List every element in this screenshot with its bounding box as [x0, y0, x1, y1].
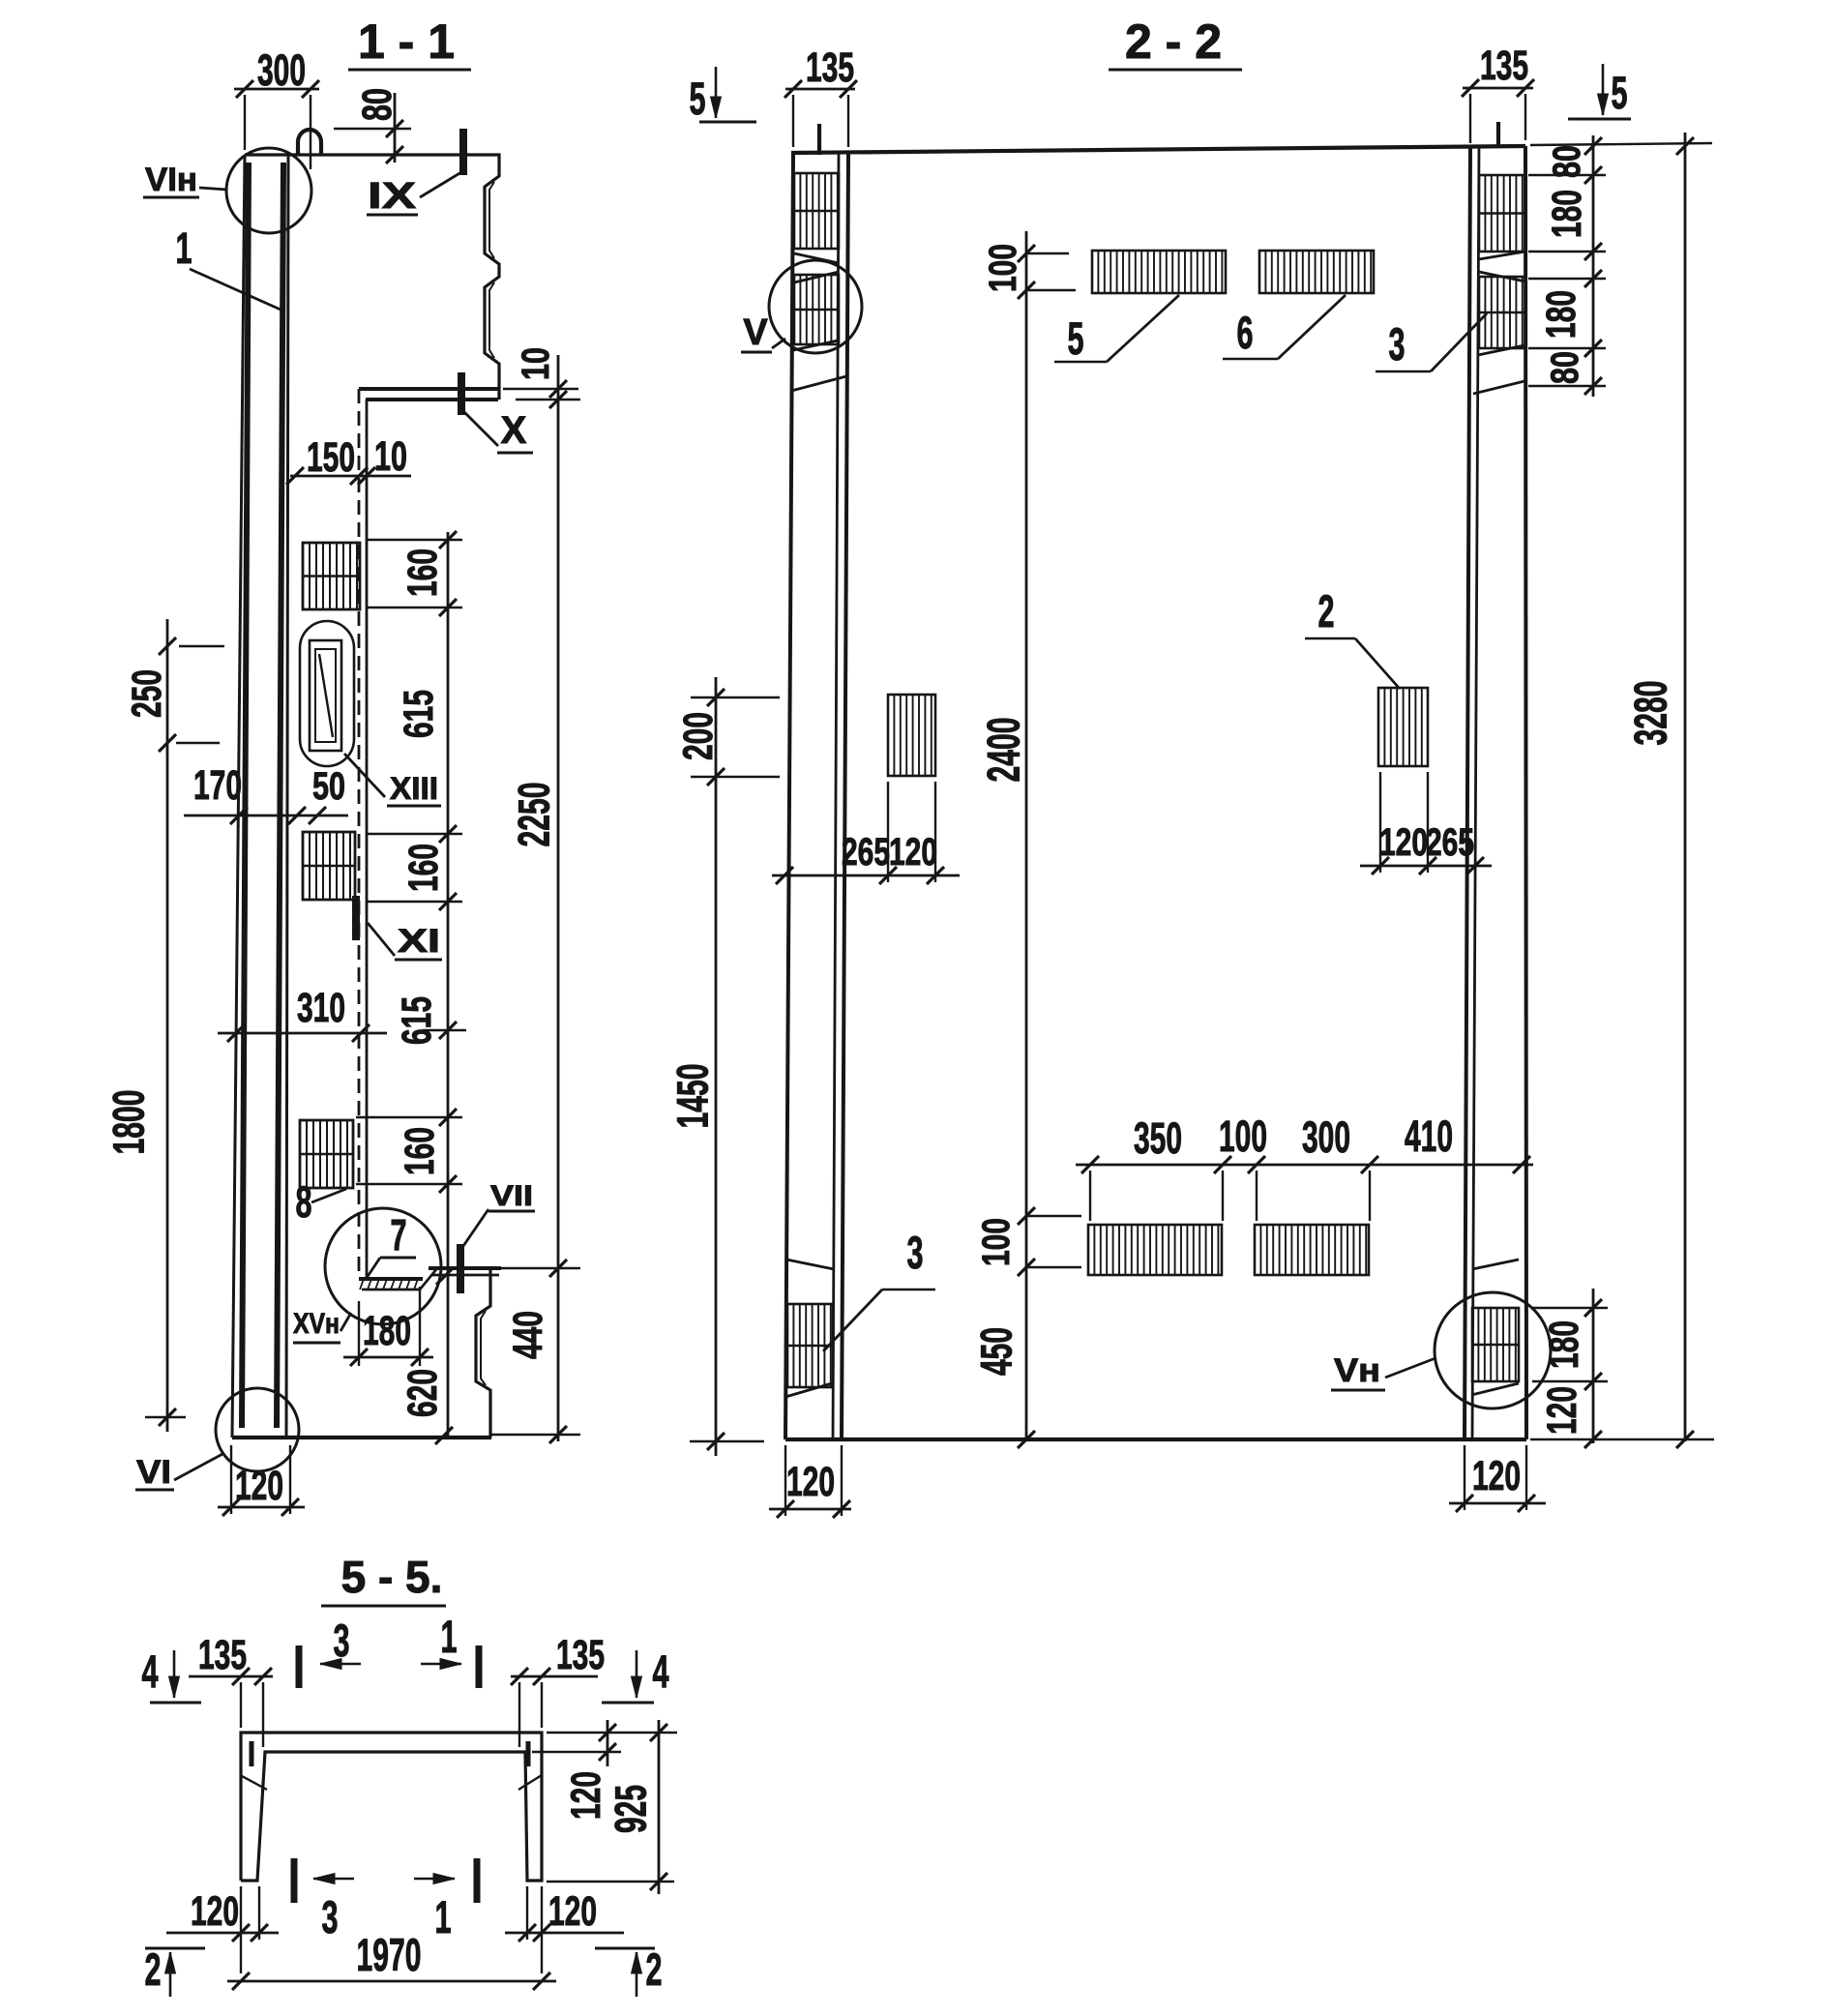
svg-text:120: 120 [1379, 821, 1428, 864]
svg-text:265: 265 [842, 831, 890, 874]
svg-text:120: 120 [235, 1463, 283, 1509]
svg-text:1: 1 [176, 223, 192, 273]
svg-text:50: 50 [312, 765, 345, 808]
svg-text:265: 265 [1426, 821, 1474, 864]
svg-text:3280: 3280 [1625, 681, 1676, 746]
svg-text:300: 300 [257, 45, 306, 95]
svg-text:80: 80 [354, 88, 400, 121]
svg-text:1 - 1: 1 - 1 [358, 15, 455, 69]
svg-text:V: V [743, 312, 768, 353]
svg-text:80: 80 [1546, 145, 1588, 178]
svg-text:80: 80 [1544, 351, 1586, 384]
svg-text:350: 350 [1134, 1113, 1182, 1163]
svg-text:6: 6 [1237, 307, 1254, 358]
svg-text:440: 440 [505, 1311, 551, 1359]
svg-text:4: 4 [653, 1645, 669, 1697]
svg-text:3: 3 [322, 1891, 339, 1942]
svg-text:120: 120 [548, 1888, 597, 1935]
svg-text:100: 100 [982, 244, 1024, 292]
svg-text:5: 5 [1068, 312, 1084, 364]
svg-text:200: 200 [675, 712, 722, 760]
svg-text:1450: 1450 [668, 1064, 718, 1129]
svg-text:VII: VII [490, 1180, 533, 1212]
svg-text:310: 310 [297, 985, 345, 1031]
svg-text:3: 3 [907, 1227, 924, 1278]
svg-text:2: 2 [1318, 585, 1335, 637]
svg-text:135: 135 [806, 44, 854, 91]
svg-text:3: 3 [1389, 318, 1406, 370]
svg-text:120: 120 [889, 831, 937, 874]
svg-text:1: 1 [435, 1891, 452, 1942]
svg-text:620: 620 [400, 1369, 446, 1417]
svg-text:8: 8 [296, 1177, 312, 1227]
svg-text:180: 180 [363, 1308, 411, 1354]
svg-text:2250: 2250 [510, 783, 559, 847]
svg-text:2 - 2: 2 - 2 [1125, 15, 1222, 69]
svg-text:1800: 1800 [104, 1090, 154, 1155]
svg-text:X: X [501, 409, 527, 452]
svg-text:180: 180 [1544, 190, 1590, 238]
svg-text:160: 160 [400, 548, 446, 597]
svg-text:2: 2 [145, 1943, 162, 1995]
svg-text:170: 170 [193, 762, 242, 809]
svg-text:10: 10 [515, 347, 557, 380]
svg-text:4: 4 [142, 1645, 159, 1697]
svg-text:135: 135 [556, 1632, 605, 1678]
svg-text:5 - 5.: 5 - 5. [341, 1552, 443, 1602]
svg-text:2: 2 [646, 1943, 663, 1995]
svg-text:120: 120 [786, 1459, 835, 1505]
svg-text:2400: 2400 [978, 718, 1029, 783]
svg-text:410: 410 [1405, 1112, 1453, 1161]
svg-text:120: 120 [191, 1888, 239, 1935]
svg-text:615: 615 [394, 996, 440, 1045]
svg-text:160: 160 [397, 1127, 443, 1175]
svg-text:Vн: Vн [1334, 1352, 1380, 1389]
svg-text:5: 5 [1612, 67, 1628, 118]
svg-text:VI: VI [136, 1454, 171, 1491]
svg-text:120: 120 [1472, 1453, 1521, 1499]
svg-text:1: 1 [441, 1611, 458, 1662]
svg-text:925: 925 [607, 1785, 656, 1833]
svg-text:450: 450 [972, 1327, 1021, 1376]
svg-text:150: 150 [307, 434, 355, 481]
svg-text:XIII: XIII [390, 771, 438, 806]
svg-text:7: 7 [391, 1210, 407, 1260]
svg-text:180: 180 [1538, 290, 1584, 339]
svg-text:10: 10 [374, 433, 407, 480]
svg-text:100: 100 [1219, 1112, 1267, 1161]
svg-text:VIн: VIн [145, 162, 197, 198]
svg-text:XVн: XVн [293, 1308, 340, 1340]
svg-text:5: 5 [690, 73, 706, 124]
svg-text:100: 100 [975, 1218, 1018, 1266]
svg-text:120: 120 [1539, 1386, 1585, 1435]
svg-text:135: 135 [198, 1632, 247, 1678]
svg-text:300: 300 [1302, 1112, 1350, 1162]
svg-text:IX: IX [368, 176, 417, 217]
svg-text:XI: XI [398, 923, 440, 960]
svg-text:120: 120 [563, 1771, 609, 1820]
svg-text:1970: 1970 [357, 1929, 422, 1980]
svg-text:160: 160 [400, 844, 447, 892]
svg-text:135: 135 [1480, 43, 1528, 89]
svg-text:180: 180 [1541, 1320, 1587, 1369]
svg-text:250: 250 [124, 669, 170, 718]
svg-text:615: 615 [396, 690, 442, 738]
